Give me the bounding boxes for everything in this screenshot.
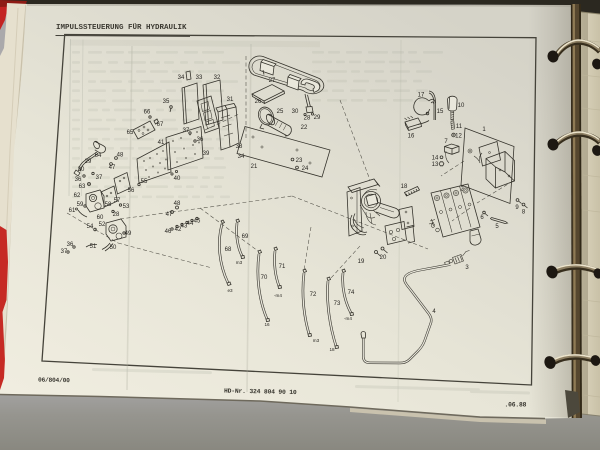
svg-text:20: 20	[380, 255, 387, 261]
svg-text:37: 37	[61, 249, 68, 255]
svg-text:19: 19	[358, 259, 365, 265]
svg-text:64: 64	[95, 153, 102, 159]
svg-text:32: 32	[214, 75, 221, 81]
svg-text:66: 66	[144, 110, 151, 116]
svg-text:e3: e3	[227, 288, 233, 293]
svg-text:48: 48	[117, 153, 124, 159]
svg-text:52: 52	[99, 222, 106, 228]
svg-text:41: 41	[158, 140, 165, 146]
svg-text:13: 13	[432, 162, 439, 168]
svg-text:16: 16	[264, 322, 270, 327]
svg-text:70: 70	[261, 275, 268, 281]
svg-text:61: 61	[69, 208, 76, 214]
svg-text:30: 30	[292, 109, 299, 115]
svg-text:.06.88: .06.88	[505, 402, 527, 409]
svg-text:17: 17	[418, 93, 425, 99]
svg-text:74: 74	[348, 290, 355, 296]
svg-text:62: 62	[74, 193, 81, 199]
svg-text:31: 31	[227, 97, 234, 103]
svg-text:29: 29	[314, 115, 321, 121]
svg-text:18: 18	[329, 347, 335, 352]
svg-text:36: 36	[197, 137, 204, 143]
svg-text:56: 56	[128, 188, 135, 194]
svg-text:11: 11	[456, 124, 463, 130]
svg-text:15: 15	[437, 109, 444, 115]
svg-text:68: 68	[225, 247, 232, 253]
svg-text:46: 46	[165, 229, 172, 235]
svg-text:72: 72	[310, 292, 317, 298]
svg-text:65: 65	[127, 130, 134, 136]
svg-text:63: 63	[79, 184, 86, 190]
svg-text:53: 53	[123, 204, 130, 210]
svg-text:14: 14	[432, 156, 439, 162]
svg-text:34: 34	[178, 75, 185, 81]
svg-text:28: 28	[304, 116, 311, 122]
svg-text:36: 36	[75, 177, 82, 183]
svg-text:m3: m3	[313, 338, 320, 343]
svg-text:IMPULSSTEUERUNG FÜR HYDRAULIK: IMPULSSTEUERUNG FÜR HYDRAULIK	[56, 23, 187, 32]
svg-text:21: 21	[251, 164, 258, 170]
svg-text:33: 33	[196, 75, 203, 81]
svg-text:28: 28	[113, 212, 120, 218]
svg-text:23: 23	[296, 158, 303, 164]
svg-text:36: 36	[67, 242, 74, 248]
svg-text:27: 27	[269, 78, 276, 84]
svg-text:49: 49	[125, 231, 132, 237]
svg-text:57: 57	[114, 198, 121, 204]
svg-text:22: 22	[301, 125, 308, 131]
svg-text:45: 45	[194, 219, 201, 225]
svg-text:30: 30	[78, 167, 85, 173]
svg-text:29: 29	[85, 159, 92, 165]
svg-text:26: 26	[255, 99, 262, 105]
svg-text:47: 47	[109, 165, 116, 171]
svg-text:67: 67	[157, 122, 164, 128]
svg-text:25: 25	[277, 109, 284, 115]
svg-text:58: 58	[105, 202, 112, 208]
svg-text:m3: m3	[236, 260, 243, 265]
svg-text:-m4: -m4	[274, 293, 282, 298]
svg-text:10: 10	[458, 103, 465, 109]
svg-text:60: 60	[97, 215, 104, 221]
svg-text:39: 39	[203, 151, 210, 157]
svg-text:-m4: -m4	[344, 316, 352, 321]
svg-text:51: 51	[90, 244, 97, 250]
svg-text:24: 24	[302, 166, 309, 172]
svg-text:35: 35	[163, 99, 170, 105]
svg-text:18: 18	[401, 184, 408, 190]
svg-text:16: 16	[408, 134, 415, 140]
svg-text:73: 73	[334, 301, 341, 307]
svg-text:50: 50	[110, 245, 117, 251]
svg-text:59: 59	[77, 202, 84, 208]
svg-text:69: 69	[242, 234, 249, 240]
svg-text:12: 12	[455, 134, 462, 140]
svg-text:40: 40	[174, 176, 181, 182]
svg-text:55: 55	[141, 179, 148, 185]
svg-text:71: 71	[279, 264, 286, 270]
svg-text:37: 37	[96, 175, 103, 181]
svg-text:48: 48	[174, 201, 181, 207]
svg-text:06/804/00: 06/804/00	[38, 377, 70, 385]
